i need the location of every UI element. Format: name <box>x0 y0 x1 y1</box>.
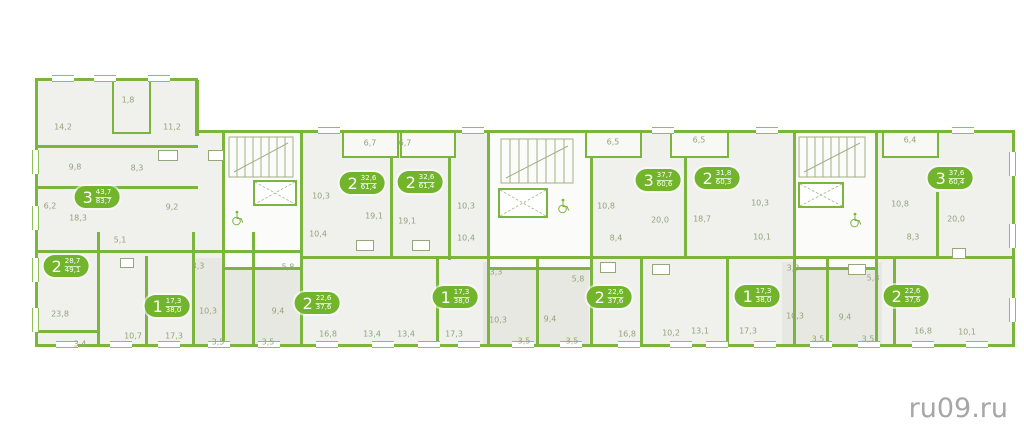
window <box>754 341 776 348</box>
interior-wall <box>536 258 539 345</box>
window <box>158 341 180 348</box>
elevator-icon <box>498 188 548 218</box>
wheelchair-icon <box>848 212 864 228</box>
room-area-label: 17,3 <box>445 330 463 339</box>
room-area-label: 9,4 <box>272 307 285 316</box>
apartment-areas: 37,760,6 <box>657 172 673 188</box>
fixture <box>600 262 616 273</box>
room-area-label: 3,5 <box>518 337 531 346</box>
room-area-label: 10,4 <box>309 230 327 239</box>
window <box>316 341 338 348</box>
room-area-label: 3,5 <box>566 337 579 346</box>
apartment-badge: 222,637,6 <box>587 286 632 308</box>
wheelchair-icon <box>556 198 572 214</box>
fixture <box>356 240 374 251</box>
interior-wall <box>936 192 939 256</box>
fixture <box>848 264 866 275</box>
elevator-icon <box>253 180 297 206</box>
room-area-label: 18,7 <box>693 215 711 224</box>
room-area-label: 14,2 <box>54 123 72 132</box>
room-area-label: 17,3 <box>739 327 757 336</box>
apartment-rooms-count: 1 <box>743 289 753 304</box>
fixture <box>952 248 966 259</box>
room-area-label: 10,1 <box>958 328 976 337</box>
room-area-label: 19,1 <box>398 217 416 226</box>
interior-wall <box>590 270 593 347</box>
stairs-icon <box>798 136 866 178</box>
apartment-badge: 232,661,4 <box>398 171 443 193</box>
apartment-badge: 222,637,6 <box>884 285 929 307</box>
apartment-badge: 232,661,4 <box>340 172 385 194</box>
apartment-badge: 222,637,6 <box>295 292 340 314</box>
apartment-badge: 337,760,6 <box>636 169 681 191</box>
apartment-rooms-count: 2 <box>348 176 358 191</box>
room-area-label: 8,4 <box>610 234 623 243</box>
apartment-badge: 228,749,1 <box>44 255 89 277</box>
fixture <box>412 240 430 251</box>
window <box>912 341 934 348</box>
room-area-label: 18,3 <box>69 214 87 223</box>
apartment-total-area: 37,6 <box>608 298 624 306</box>
room-area-label: 3,4 <box>74 340 87 349</box>
window <box>1009 224 1016 248</box>
apartment-badge: 337,660,4 <box>928 167 973 189</box>
window <box>32 150 39 174</box>
apartment-total-area: 61,4 <box>361 184 377 192</box>
fixture <box>652 264 670 275</box>
window <box>148 75 170 82</box>
window <box>952 127 974 134</box>
apartment-total-area: 38,0 <box>454 298 470 306</box>
window <box>32 206 39 230</box>
room-area-label: 6,5 <box>607 138 620 147</box>
apartment-total-area: 60,3 <box>716 179 732 187</box>
room-area-label: 10,8 <box>891 200 909 209</box>
apartment-total-area: 60,4 <box>949 179 965 187</box>
room-area-label: 10,1 <box>753 233 771 242</box>
room-area-label: 10,3 <box>457 202 475 211</box>
apartment-rooms-count: 2 <box>52 259 62 274</box>
apartment-badge: 231,860,3 <box>695 167 740 189</box>
room-area-label: 10,8 <box>597 202 615 211</box>
room-area-label: 6,7 <box>399 139 412 148</box>
fixture <box>208 150 224 161</box>
apartment-rooms-count: 3 <box>936 171 946 186</box>
window <box>618 341 640 348</box>
apartment-rooms-count: 2 <box>703 171 713 186</box>
window <box>52 75 74 82</box>
apartment-areas: 22,637,6 <box>905 288 921 304</box>
room-area-label: 5,8 <box>867 274 880 283</box>
apartment-total-area: 37,6 <box>905 297 921 305</box>
window <box>670 341 692 348</box>
room-area-label: 17,3 <box>165 332 183 341</box>
room-area-label: 10,3 <box>312 192 330 201</box>
interior-wall <box>640 258 643 345</box>
apartment-areas: 31,860,3 <box>716 170 732 186</box>
apartment-rooms-count: 2 <box>303 296 313 311</box>
interior-wall <box>97 232 100 345</box>
interior-wall <box>222 270 225 347</box>
window <box>706 341 728 348</box>
room-area-label: 10,4 <box>457 234 475 243</box>
apartment-areas: 22,637,6 <box>316 295 332 311</box>
stairs-icon <box>228 136 294 178</box>
window <box>458 341 480 348</box>
apartment-total-area: 83,7 <box>96 198 112 206</box>
room-area-label: 10,7 <box>124 332 142 341</box>
room-area-label: 10,3 <box>199 307 217 316</box>
apartment-areas: 32,661,4 <box>361 175 377 191</box>
interior-wall <box>726 258 729 345</box>
watermark: ru09.ru <box>909 393 1008 424</box>
apartment-areas: 17,338,0 <box>756 288 772 304</box>
room-area-label: 6,4 <box>904 136 917 145</box>
apartment-rooms-count: 2 <box>406 175 416 190</box>
room-area-label: 6,7 <box>364 139 377 148</box>
apartment-badge: 117,338,0 <box>145 295 190 317</box>
room-area-label: 9,4 <box>544 315 557 324</box>
room-area-label: 3,5 <box>862 335 875 344</box>
room-area-label: 10,2 <box>662 329 680 338</box>
room-area-label: 6,2 <box>44 202 57 211</box>
room-area-label: 13,1 <box>691 327 709 336</box>
room-area-label: 16,8 <box>319 330 337 339</box>
window <box>756 127 778 134</box>
room-area-label: 19,1 <box>365 212 383 221</box>
apartment-total-area: 49,1 <box>65 267 81 275</box>
interior-wall <box>302 256 1015 259</box>
interior-wall <box>196 80 199 136</box>
apartment-areas: 22,637,6 <box>608 289 624 305</box>
interior-wall <box>826 258 829 345</box>
interior-wall <box>35 145 198 148</box>
apartment-total-area: 38,0 <box>756 297 772 305</box>
fixture <box>158 150 178 161</box>
interior-wall <box>487 270 490 347</box>
room-area-label: 3,5 <box>212 338 225 347</box>
room-area-label: 9,8 <box>69 163 82 172</box>
room-area-label: 8,3 <box>907 233 920 242</box>
window <box>1009 152 1016 176</box>
window <box>418 341 440 348</box>
room-area-label: 3,3 <box>192 262 205 271</box>
apartment-rooms-count: 2 <box>892 289 902 304</box>
apartment-rooms-count: 2 <box>595 290 605 305</box>
apartment-total-area: 60,6 <box>657 181 673 189</box>
apartment-rooms-count: 1 <box>153 299 163 314</box>
window <box>462 127 484 134</box>
apartment-badge: 117,338,0 <box>735 285 780 307</box>
room-area-label: 16,8 <box>618 330 636 339</box>
room-area-label: 10,3 <box>489 316 507 325</box>
window <box>652 127 674 134</box>
interior-wall <box>793 270 796 347</box>
apartment-areas: 17,338,0 <box>166 298 182 314</box>
apartment-areas: 43,783,7 <box>96 189 112 205</box>
apartment-rooms-count: 1 <box>441 290 451 305</box>
window <box>32 308 39 332</box>
apartment-total-area: 37,6 <box>316 304 332 312</box>
room-area-label: 11,2 <box>163 123 181 132</box>
fixture <box>120 258 134 268</box>
interior-wall <box>35 330 97 333</box>
room-area-label: 5,1 <box>114 236 127 245</box>
room-area-label: 1,8 <box>122 96 135 105</box>
apartment-total-area: 38,0 <box>166 307 182 315</box>
window <box>94 75 116 82</box>
window <box>32 258 39 282</box>
room-area-label: 9,4 <box>839 313 852 322</box>
room-area-label: 9,2 <box>166 203 179 212</box>
room-area-label: 3,5 <box>812 335 825 344</box>
room-area-label: 10,3 <box>751 199 769 208</box>
room-area-label: 8,3 <box>131 164 144 173</box>
apartment-badge: 117,338,0 <box>433 286 478 308</box>
apartment-rooms-count: 3 <box>644 173 654 188</box>
window <box>110 341 132 348</box>
window <box>318 127 340 134</box>
window <box>1009 298 1016 322</box>
room-area-label: 20,0 <box>947 215 965 224</box>
room-area-label: 16,8 <box>914 327 932 336</box>
window <box>966 341 988 348</box>
interior-wall <box>252 232 255 345</box>
window <box>372 341 394 348</box>
room-area-label: 3,3 <box>490 268 503 277</box>
wheelchair-icon <box>230 210 246 226</box>
apartment-total-area: 61,4 <box>419 183 435 191</box>
apartment-areas: 32,661,4 <box>419 174 435 190</box>
stairs-icon <box>500 138 574 184</box>
room-area-label: 13,4 <box>363 330 381 339</box>
room-area-label: 6,5 <box>693 136 706 145</box>
room-area-label: 3,3 <box>787 264 800 273</box>
room-area-label: 13,4 <box>397 330 415 339</box>
room-area-label: 5,8 <box>572 275 585 284</box>
apartment-areas: 37,660,4 <box>949 170 965 186</box>
room-area-label: 10,3 <box>786 312 804 321</box>
room-area-label: 5,8 <box>282 263 295 272</box>
apartment-rooms-count: 3 <box>83 190 93 205</box>
room-area-label: 3,5 <box>262 338 275 347</box>
room-area-label: 23,8 <box>51 310 69 319</box>
interior-wall <box>192 232 195 345</box>
apartment-areas: 17,338,0 <box>454 289 470 305</box>
room-area-label: 20,0 <box>651 216 669 225</box>
apartment-badge: 343,783,7 <box>75 186 120 208</box>
elevator-icon <box>798 182 844 208</box>
interior-wall <box>35 250 303 253</box>
storage-room-outline <box>112 81 151 134</box>
floor-plan-image: ru09.ru 1,814,211,29,88,36,218,39,25,123… <box>0 0 1024 434</box>
apartment-areas: 28,749,1 <box>65 258 81 274</box>
